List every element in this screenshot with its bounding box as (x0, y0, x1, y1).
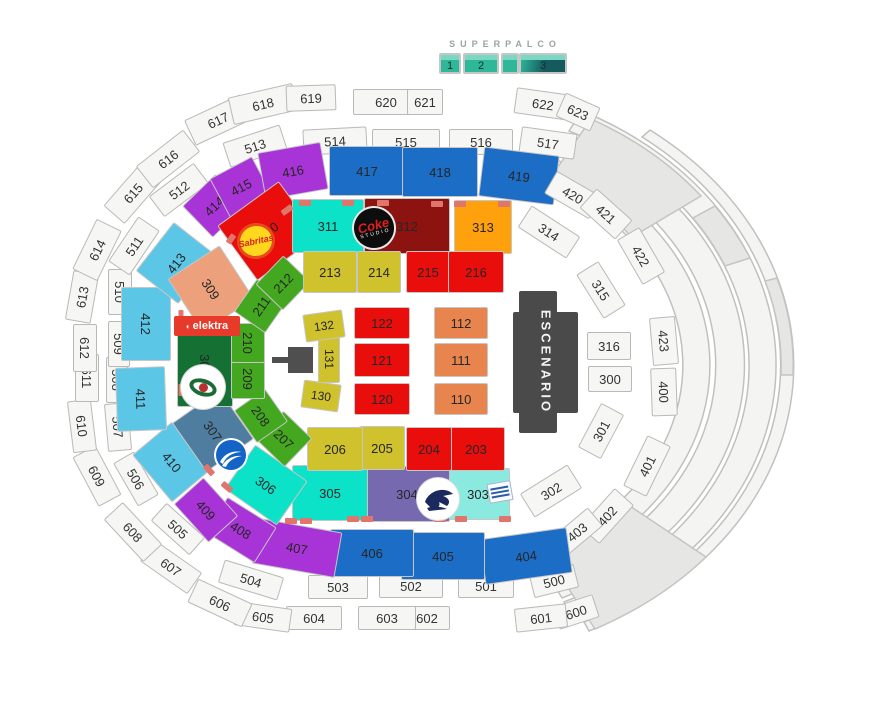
camera-platform (288, 347, 313, 373)
section-419[interactable]: 419 (478, 147, 560, 206)
section-423[interactable]: 423 (649, 316, 679, 366)
section-209[interactable]: 209 (231, 359, 265, 399)
section-204[interactable]: 204 (406, 427, 452, 471)
superpalco-box-label: 2 (478, 60, 484, 72)
stage-label: ESCENARIO (539, 310, 554, 414)
section-132[interactable]: 132 (302, 309, 346, 342)
section-400[interactable]: 400 (650, 368, 678, 417)
section-121[interactable]: 121 (354, 343, 410, 377)
section-111[interactable]: 111 (434, 343, 488, 377)
superpalco-box-1[interactable]: 1 (439, 53, 461, 74)
section-417[interactable]: 417 (329, 146, 405, 196)
section-300[interactable]: 300 (588, 366, 632, 392)
section-305[interactable]: 305 (292, 465, 368, 521)
superpalco-box-2[interactable]: 2 (463, 53, 499, 74)
section-303[interactable]: 303 (446, 468, 510, 520)
section-112[interactable]: 112 (434, 307, 488, 339)
superpalco-box[interactable] (501, 53, 519, 74)
section-215[interactable]: 215 (406, 251, 450, 293)
section-313[interactable]: 313 (454, 200, 512, 254)
section-603[interactable]: 603 (358, 606, 416, 630)
superpalco-box-strip (441, 55, 459, 60)
section-411[interactable]: 411 (115, 366, 167, 432)
section-206[interactable]: 206 (307, 427, 363, 471)
section-312[interactable]: 312 (364, 198, 450, 254)
arena-seating-map: SUPERPALCO 123 6006016026036046056066076… (0, 0, 872, 707)
superpalco-box-strip (465, 55, 497, 60)
section-131[interactable]: 131 (318, 335, 340, 383)
section-418[interactable]: 418 (402, 147, 478, 197)
section-612[interactable]: 612 (73, 324, 97, 372)
camera-platform-arm (272, 357, 289, 363)
section-213[interactable]: 213 (303, 251, 357, 293)
superpalco-box-label: 3 (540, 60, 546, 72)
section-216[interactable]: 216 (448, 251, 504, 293)
superpalco-box-3[interactable]: 3 (519, 53, 567, 74)
section-308[interactable]: 308 (177, 323, 233, 407)
section-619[interactable]: 619 (286, 84, 337, 112)
section-311[interactable]: 311 (292, 199, 364, 253)
section-503[interactable]: 503 (308, 575, 368, 599)
section-205[interactable]: 205 (359, 426, 405, 470)
section-120[interactable]: 120 (354, 383, 410, 415)
section-316[interactable]: 316 (587, 332, 631, 360)
section-203[interactable]: 203 (447, 427, 505, 471)
section-604[interactable]: 604 (286, 606, 342, 630)
section-130[interactable]: 130 (300, 379, 342, 412)
section-304[interactable]: 304 (364, 466, 450, 522)
section-122[interactable]: 122 (354, 307, 410, 339)
superpalco-label: SUPERPALCO (449, 39, 561, 49)
section-110[interactable]: 110 (434, 383, 488, 415)
superpalco-box-strip (503, 55, 517, 60)
section-412[interactable]: 412 (121, 287, 171, 361)
section-406[interactable]: 406 (330, 529, 414, 577)
superpalco-box-label: 1 (447, 60, 453, 72)
section-621[interactable]: 621 (407, 89, 443, 115)
superpalco-box-strip (521, 55, 565, 60)
section-214[interactable]: 214 (357, 251, 401, 293)
